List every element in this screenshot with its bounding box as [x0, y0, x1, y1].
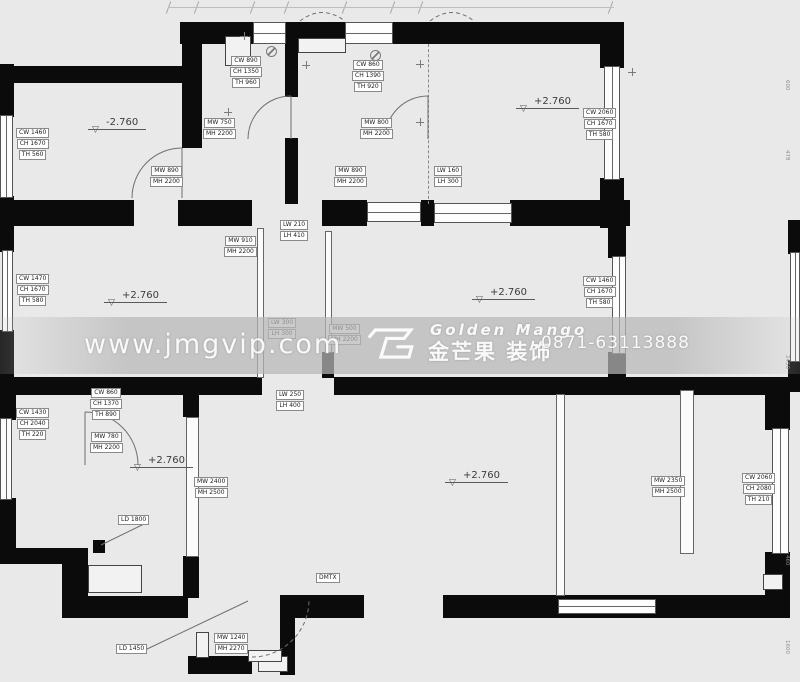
dimension-label-line: CH 1670: [17, 139, 49, 149]
level-marker: ▽+2.760: [104, 290, 167, 303]
level-marker: ▽+2.760: [472, 287, 535, 300]
dimension-label-line: MH 2200: [360, 129, 393, 139]
dimension-label-line: LW 160: [434, 166, 462, 176]
dimension-label-line: LD 1800: [118, 515, 149, 525]
level-marker: ▽+2.760: [445, 470, 508, 483]
dimension-label-line: CW 1430: [16, 408, 49, 418]
dimension-label: MW 1240MH 2270: [214, 633, 248, 654]
watermark-band: www.jmgvip.com Golden Mango 金芒果 装饰 0871-…: [0, 317, 800, 374]
dimension-label: MW 2400MH 2500: [194, 477, 228, 498]
dimension-label: LD 1450: [116, 644, 147, 654]
level-marker: ▽+2.760: [130, 455, 193, 468]
dimension-label: LW 160LH 300: [434, 166, 462, 187]
dimension-label: CW 2060CH 2080TH 210: [742, 473, 775, 505]
dimension-label: CW 890CH 1350TH 960: [230, 56, 262, 88]
level-triangle-icon: ▽: [92, 125, 99, 135]
dimension-label-line: LW 210: [280, 220, 308, 230]
dimension-label-line: MW 910: [225, 236, 255, 246]
dimension-label-line: TH 890: [92, 410, 120, 420]
dimension-label: MW 800MH 2200: [360, 118, 393, 139]
dimension-label: CW 1460CH 1670TH 580: [583, 276, 616, 308]
level-marker: ▽+2.760: [516, 96, 579, 109]
dimension-label: CW 1460CH 1670TH 560: [16, 128, 49, 160]
dimension-label-line: CH 2080: [743, 484, 775, 494]
level-triangle-icon: ▽: [108, 298, 115, 308]
level-triangle-icon: ▽: [476, 295, 483, 305]
dimension-label-line: DMTX: [316, 573, 340, 583]
door-swing-arc: [248, 96, 291, 139]
dimension-label: CW 1430CH 2040TH 220: [16, 408, 49, 440]
dimension-label: DMTX: [316, 573, 340, 583]
dimension-label-line: CW 860: [353, 60, 382, 70]
dimension-label-line: TH 580: [586, 130, 614, 140]
label-leader-line: [101, 523, 146, 545]
dimension-label-line: CW 2060: [742, 473, 775, 483]
dimension-label-line: MH 2500: [195, 488, 228, 498]
dimension-label-line: TH 210: [745, 495, 773, 505]
level-triangle-icon: ▽: [449, 478, 456, 488]
door-swing-arc-dashed: [252, 600, 309, 657]
dimension-label-line: CH 1370: [90, 399, 122, 409]
dimension-label-line: MH 2200: [334, 177, 367, 187]
dimension-label-line: MW 750: [204, 118, 234, 128]
level-triangle-icon: ▽: [134, 463, 141, 473]
dimension-label-line: TH 960: [232, 78, 260, 88]
dimension-label-line: LH 300: [434, 177, 461, 187]
dimension-label: CW 2060CH 1670TH 580: [583, 108, 616, 140]
dimension-label-line: CH 1670: [584, 287, 616, 297]
dimension-label-line: CW 2060: [583, 108, 616, 118]
dimension-label: LD 1800: [118, 515, 149, 525]
dimension-label-line: CH 1670: [584, 119, 616, 129]
dimension-label-line: CW 860: [91, 388, 120, 398]
floor-plan-canvas: www.jmgvip.com Golden Mango 金芒果 装饰 0871-…: [0, 0, 800, 682]
door-swing-arc-dashed: [430, 13, 474, 22]
dimension-label: LW 210LH 410: [280, 220, 308, 241]
dimension-label-line: TH 920: [354, 82, 382, 92]
dimension-label: CW 860CH 1370TH 890: [90, 388, 122, 420]
dimension-label-line: MW 890: [151, 166, 181, 176]
phone-number: 0871-63113888: [541, 333, 690, 353]
watermark-url: www.jmgvip.com: [84, 329, 342, 360]
dimension-label-line: MH 2200: [203, 129, 236, 139]
dimension-label: MW 890MH 2200: [334, 166, 367, 187]
dimension-label-line: MW 800: [361, 118, 391, 128]
dimension-label: MW 780MH 2200: [90, 432, 123, 453]
dimension-label-line: MW 1240: [214, 633, 248, 643]
dimension-label: MW 750MH 2200: [203, 118, 236, 139]
dimension-label-line: CW 1470: [16, 274, 49, 284]
dimension-label-line: CH 1350: [230, 67, 262, 77]
dimension-label-line: TH 580: [586, 298, 614, 308]
dimension-label-line: MH 2500: [652, 487, 685, 497]
dimension-label: CW 1470CH 1670TH 580: [16, 274, 49, 306]
dimension-label-line: LW 250: [276, 390, 304, 400]
dimension-label-line: LH 410: [280, 231, 307, 241]
dimension-label-line: CW 1460: [16, 128, 49, 138]
dimension-label-line: MH 2270: [215, 644, 248, 654]
level-marker: ▽-2.760: [88, 117, 146, 130]
dimension-label-line: MW 2350: [651, 476, 685, 486]
dimension-label-line: LD 1450: [116, 644, 147, 654]
dimension-label-line: TH 560: [19, 150, 47, 160]
dimension-label-line: MW 780: [91, 432, 121, 442]
dimension-label-line: CH 1390: [352, 71, 384, 81]
dimension-label-line: TH 220: [19, 430, 47, 440]
dimension-label-line: MH 2200: [90, 443, 123, 453]
dimension-label: CW 860CH 1390TH 920: [352, 60, 384, 92]
golden-mango-logo-icon: [366, 323, 422, 369]
brand-name-cn: 金芒果 装饰: [428, 336, 552, 366]
dimension-label: MW 2350MH 2500: [651, 476, 685, 497]
dimension-label-line: MW 890: [335, 166, 365, 176]
level-triangle-icon: ▽: [520, 104, 527, 114]
dimension-label: MW 910MH 2200: [224, 236, 257, 257]
dimension-label-line: MW 2400: [194, 477, 228, 487]
dimension-label-line: TH 580: [19, 296, 47, 306]
door-swing-arc-dashed: [300, 13, 345, 22]
dimension-label-line: MH 2200: [224, 247, 257, 257]
dimension-label-line: CW 1460: [583, 276, 616, 286]
dimension-label: LW 250LH 400: [276, 390, 304, 411]
dimension-label-line: MH 2200: [150, 177, 183, 187]
dimension-label-line: LH 400: [276, 401, 303, 411]
dimension-label-line: CW 890: [231, 56, 260, 66]
dimension-label-line: CH 1670: [17, 285, 49, 295]
dimension-label-line: CH 2040: [17, 419, 49, 429]
dimension-label: MW 890MH 2200: [150, 166, 183, 187]
